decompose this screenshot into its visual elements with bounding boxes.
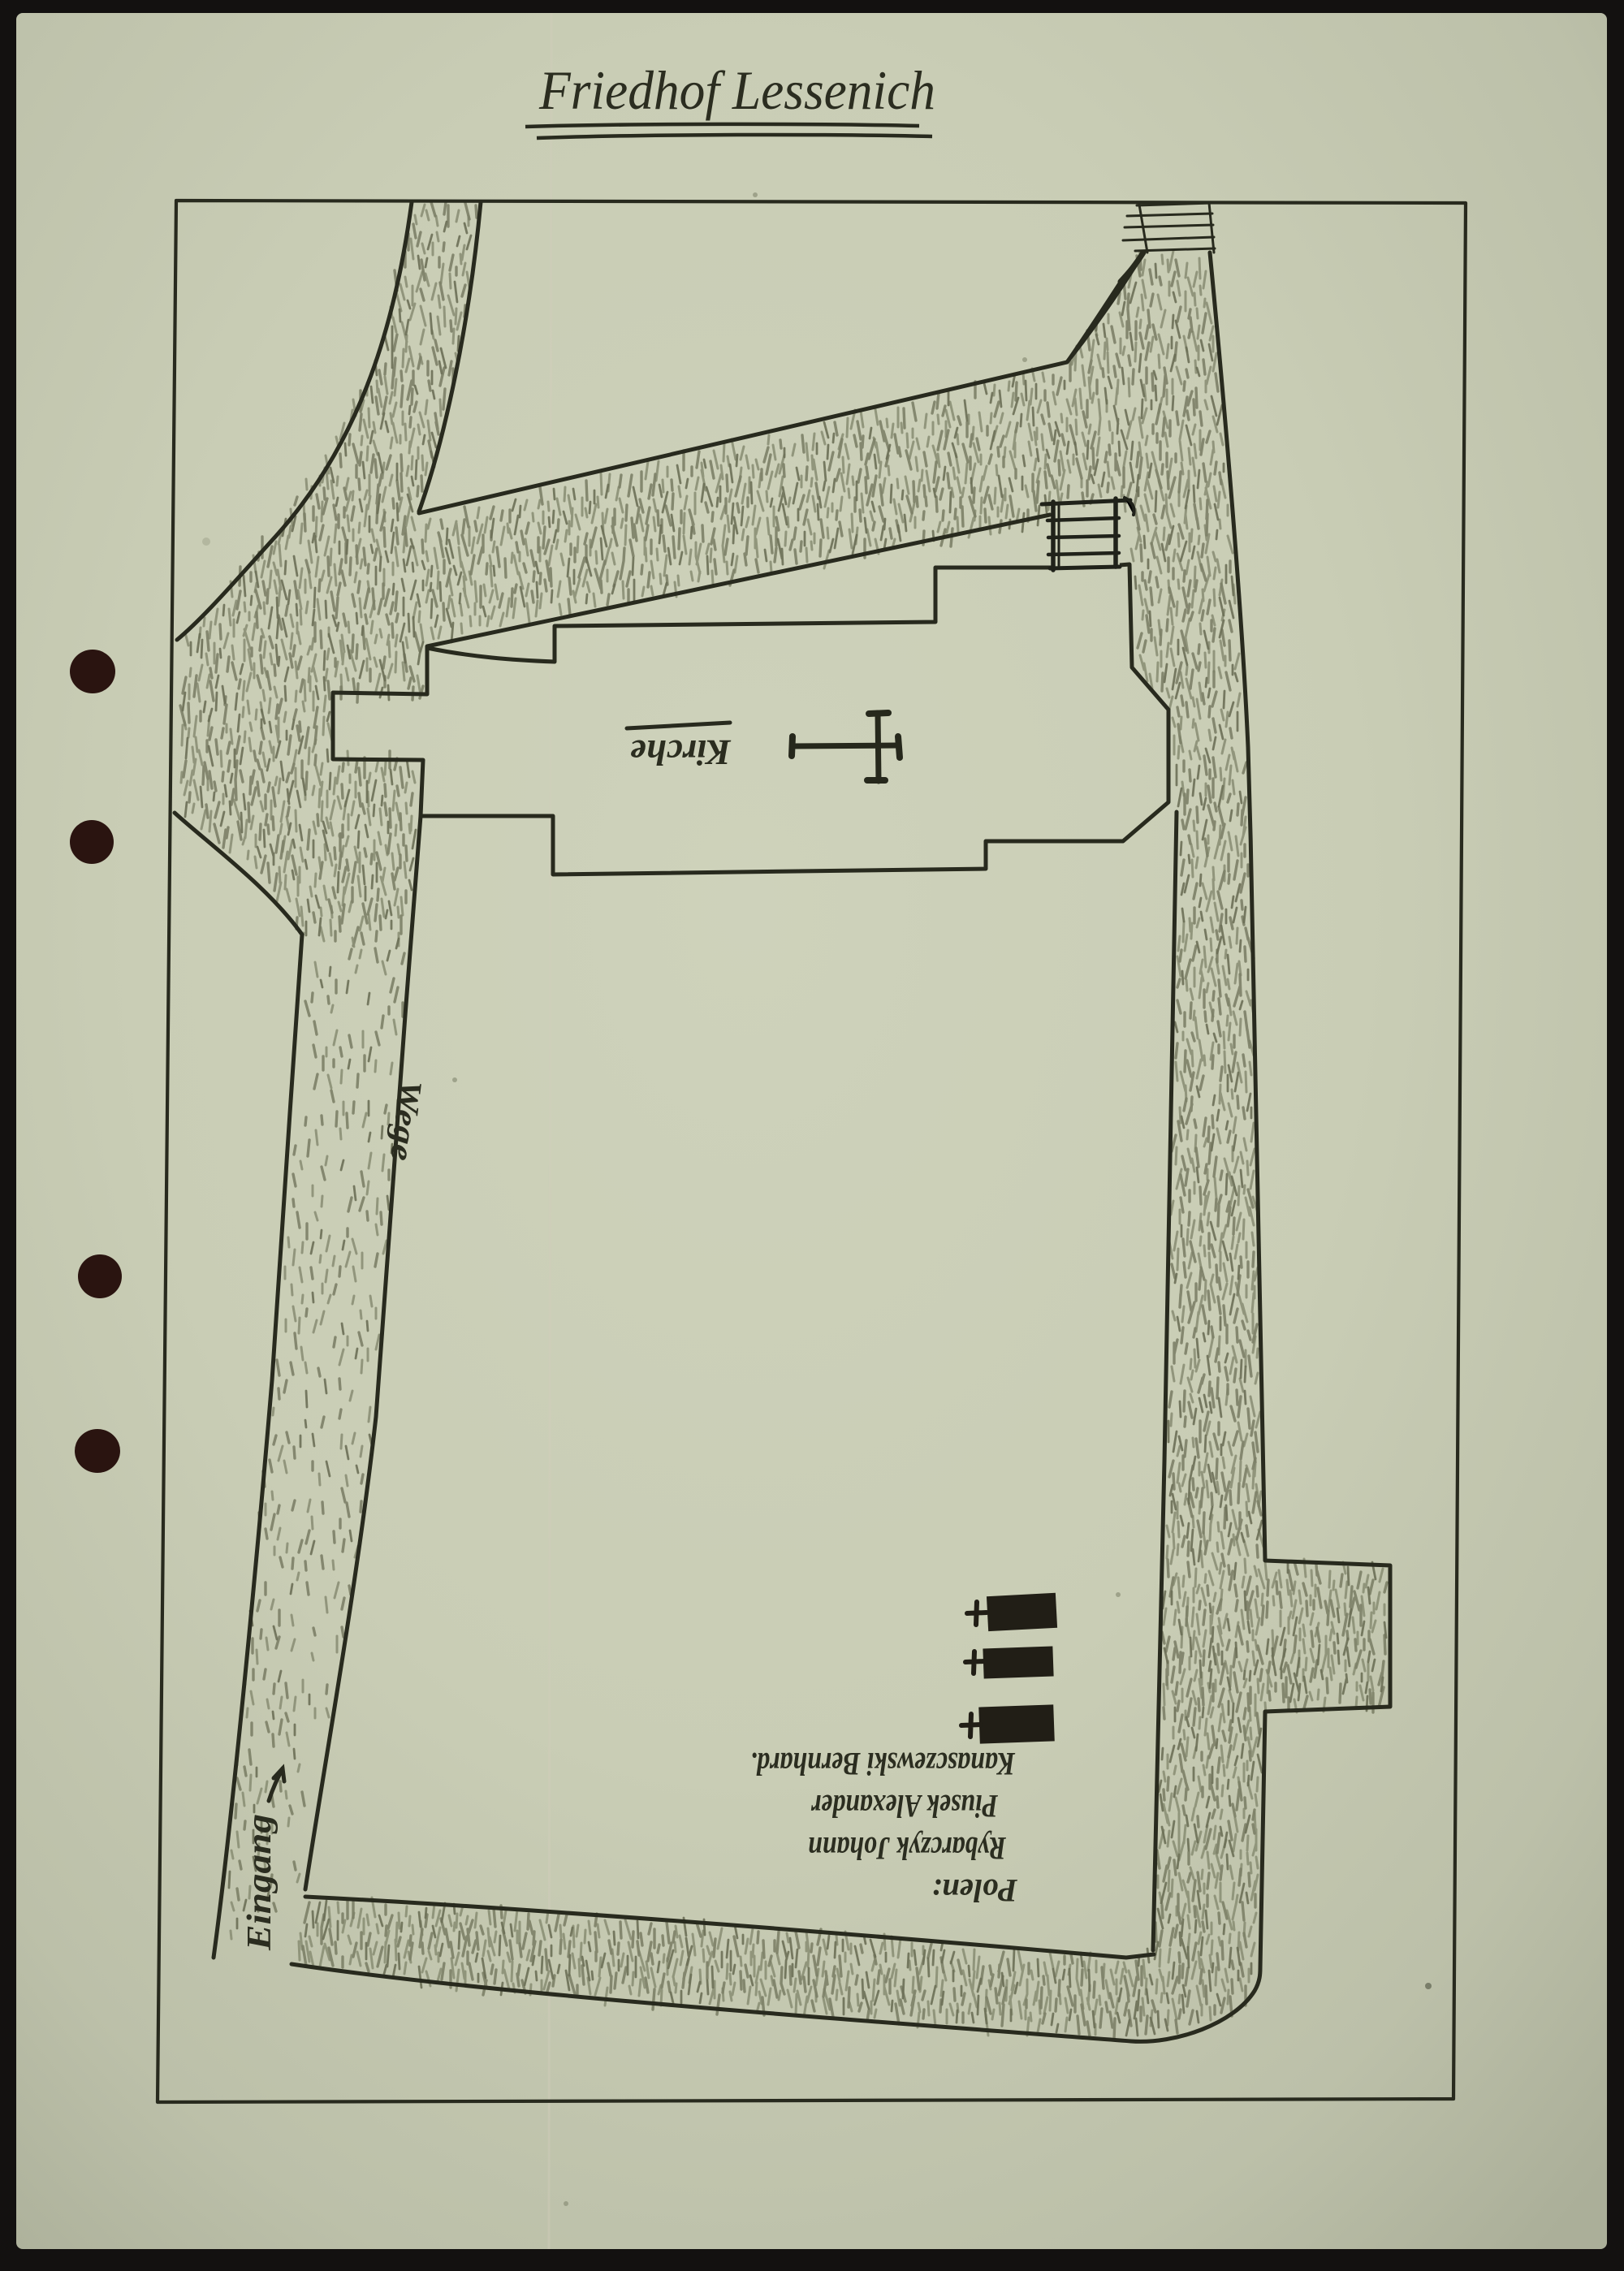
svg-text:Rybarczyk Johann: Rybarczyk Johann bbox=[808, 1830, 1007, 1867]
svg-text:Piusek Alexander: Piusek Alexander bbox=[811, 1788, 999, 1824]
svg-text:Eingang: Eingang bbox=[241, 1814, 279, 1951]
svg-text:Friedhof Lessenich: Friedhof Lessenich bbox=[538, 59, 935, 121]
svg-text:Kirche: Kirche bbox=[630, 732, 732, 772]
svg-text:Kanasczewski Bernhard.: Kanasczewski Bernhard. bbox=[750, 1746, 1016, 1782]
svg-text:Polen:: Polen: bbox=[931, 1872, 1018, 1909]
